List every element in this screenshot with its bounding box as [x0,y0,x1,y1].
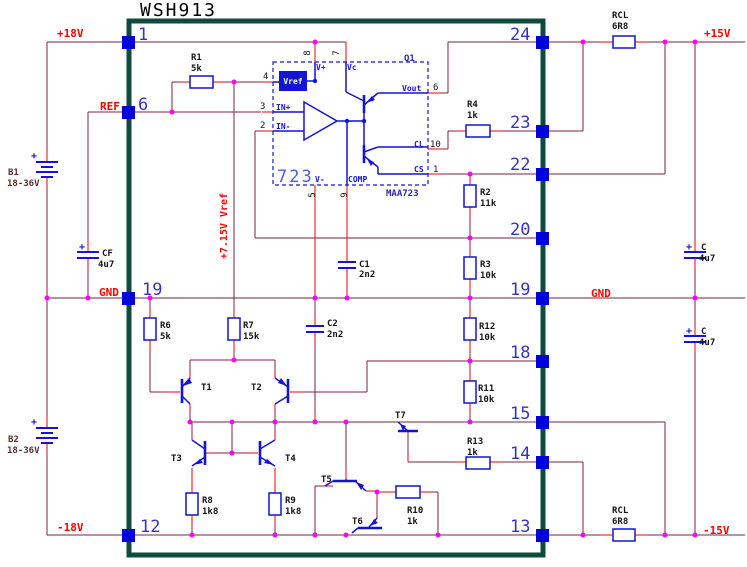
polarity-plus-icon: + [686,326,692,337]
pin-number-22: 22 [510,155,530,175]
pin-number-14: 14 [510,444,530,464]
page-title: WSH913 [140,0,217,21]
polarity-plus-icon: + [686,242,692,253]
pin-number-15: 15 [510,404,530,424]
ic-pin5-number: 5 [308,192,318,197]
part-value: 15k [243,332,260,342]
part-value: 10k [478,395,495,405]
capacitor-c1[interactable]: C1 2n2 [338,260,375,280]
pad-pin-1[interactable] [122,36,135,49]
resistor-r9[interactable]: R9 1k8 [269,493,301,517]
part-name: RCL [612,506,629,516]
ic-junction [362,119,366,123]
ic-inplus-label: IN+ [276,103,291,112]
part-value: 6R8 [612,517,628,527]
part-value: 11k [480,199,497,209]
resistor-r12[interactable]: R12 10k [464,318,496,343]
resistor-rcl-bottom[interactable]: RCL 6R8 [612,506,635,541]
part-name: R9 [285,496,296,506]
part-value: 10k [479,333,496,343]
ic-vminus-label: V- [315,175,325,184]
net-label-minus18v: -18V [57,521,84,534]
part-name: R12 [479,322,495,332]
capacitor-c2[interactable]: C2 2n2 [306,319,343,340]
ic-comp-label: COMP [348,175,367,184]
pad-pin-15[interactable] [536,416,549,429]
part-value: 18-36V [7,179,40,189]
part-name: T6 [352,517,363,527]
resistor-r10[interactable]: R10 1k [396,486,423,527]
ic-pin8-number: 8 [303,50,313,55]
pin-number-13: 13 [510,517,530,537]
ic-cs-label: CS [414,165,424,174]
resistor-r13[interactable]: R13 1k [466,437,490,469]
pin-number-12: 12 [140,517,160,537]
pin-number-6: 6 [138,95,148,115]
part-name: R13 [467,437,483,447]
part-name: R6 [160,321,171,331]
part-value: 1k [467,111,478,121]
part-name: T4 [285,454,296,464]
ic-limit-transistor-arrow-icon [367,159,374,166]
capacitor-cf[interactable]: + CF 4u7 [77,242,114,270]
resistor-r4[interactable]: R4 1k [466,100,490,137]
pin-number-20: 20 [510,220,530,240]
part-name: R4 [467,100,478,110]
ic-part-number: MAA723 [386,189,419,199]
pad-pin-23[interactable] [536,125,549,138]
pad-pin-19-right[interactable] [536,292,549,305]
pad-pin-13[interactable] [536,529,549,542]
pin-number-24: 24 [510,25,530,45]
part-value: 5k [160,332,171,342]
ic-pin7-number: 7 [332,50,342,55]
pad-pin-22[interactable] [536,168,549,181]
ic-cl-label: CL [414,140,424,149]
transistor-t7[interactable]: T7 [395,411,418,431]
part-name: B2 [8,435,19,445]
resistor-r8[interactable]: R8 1k8 [186,493,218,517]
part-name: R2 [480,188,491,198]
battery-b2[interactable]: + B2 18-36V [7,417,58,456]
ic-vplus-label: V+ [316,63,326,72]
part-name: T3 [171,454,182,464]
part-name: RCL [612,11,629,21]
part-value: 5k [191,64,202,74]
module-outline [129,21,543,555]
net-label-minus15v: -15V [703,524,730,537]
transistor-t6[interactable]: T6 [352,517,382,533]
ic-vc-label: Vc [347,63,357,72]
resistor-rcl-top[interactable]: RCL 6R8 [612,11,635,48]
transistor-t2[interactable]: T2 [251,378,288,404]
part-name: T5 [321,475,332,485]
transistor-q1-label: Q1 [404,54,415,64]
pad-pin-20[interactable] [536,232,549,245]
part-value: 6R8 [612,22,628,32]
ic-vout-label: Vout [402,84,421,93]
pin-number-1: 1 [138,25,148,45]
ic-pin9-number: 9 [340,192,350,197]
resistor-r6[interactable]: R6 5k [144,318,171,342]
ic-723-big-label: 723 [277,167,314,187]
part-name: R11 [478,384,494,394]
net-label-ref: REF [100,100,120,113]
pad-pin-18[interactable] [536,355,549,368]
part-name: C [701,243,706,253]
part-value: 2n2 [327,330,343,340]
pin-number-23: 23 [510,113,530,133]
part-name: R1 [191,53,202,63]
ic-pin3-number: 3 [260,102,265,112]
polarity-plus-icon: + [79,242,85,253]
ic-inminus-label: IN- [276,122,290,131]
part-name: CF [102,249,113,259]
ic-pin1-number: 1 [433,165,438,175]
part-name: R10 [407,506,423,516]
pad-pin-12[interactable] [122,529,135,542]
ic-pin2-number: 2 [260,121,265,131]
ic-vref-label: Vref [283,77,302,86]
part-value: 1k [467,448,478,458]
part-name: T1 [201,383,212,393]
transistor-t3[interactable]: T3 [171,440,205,466]
capacitor-c-bottom[interactable]: + C 4u7 [684,326,715,348]
pad-pin-24[interactable] [536,36,549,49]
part-name: C2 [327,319,338,329]
transistor-t4[interactable]: T4 [260,440,296,466]
ic-junction [313,79,317,83]
polarity-plus-icon: + [31,417,37,428]
resistor-r2[interactable]: R2 11k [464,185,497,209]
part-value: 1k8 [285,507,301,517]
net-label-vref-rail: +7.15V Vref [219,193,230,259]
polarity-plus-icon: + [31,151,37,162]
part-name: R3 [480,260,491,270]
part-value: 4u7 [699,254,715,264]
part-name: B1 [8,168,19,178]
part-name: R8 [202,496,213,506]
capacitor-c-top[interactable]: + C 4u7 [684,242,715,264]
net-label-gnd-right: GND [591,287,611,300]
part-name: C1 [359,260,370,270]
net-label-plus18v: +18V [57,27,84,40]
net-label-gnd-left: GND [99,286,119,299]
resistor-r3[interactable]: R3 10k [464,257,497,281]
resistor-r11[interactable]: R11 10k [464,381,495,405]
battery-b1[interactable]: + B1 18-36V [7,151,58,189]
part-value: 4u7 [699,338,715,348]
part-value: 1k8 [202,507,218,517]
pad-pin-6[interactable] [122,106,135,119]
pad-pin-19-left[interactable] [122,292,135,305]
ic-pin4-number: 4 [263,72,268,82]
part-value: 1k [407,517,418,527]
ic-opamp-triangle [304,102,337,140]
pin-number-18: 18 [510,343,530,363]
transistor-t1[interactable]: T1 [182,378,212,404]
pin-number-19-right: 19 [510,280,530,300]
resistor-r1[interactable]: R1 5k [190,53,213,88]
part-name: T2 [251,383,262,393]
ic-maa723[interactable]: Vref V+ Vc IN+ IN- Vout CL CS COMP V- 4 … [260,50,441,199]
ic-pin6-number: 6 [433,83,438,93]
net-label-plus15v: +15V [704,27,731,40]
pad-pin-14[interactable] [536,456,549,469]
schematic-canvas: Vref V+ Vc IN+ IN- Vout CL CS COMP V- 4 … [0,0,747,567]
part-name: T7 [395,411,406,421]
part-name: C [701,327,706,337]
part-value: 2n2 [359,270,375,280]
ic-junction [345,119,349,123]
transistor-t5[interactable]: T5 [321,475,366,491]
pin-number-19-left: 19 [142,280,162,300]
resistor-r7[interactable]: R7 15k [228,318,260,342]
ic-pin10-number: 10 [430,140,441,150]
part-value: 10k [480,271,497,281]
part-value: 18-36V [7,446,40,456]
part-name: R7 [243,321,254,331]
part-value: 4u7 [98,260,114,270]
